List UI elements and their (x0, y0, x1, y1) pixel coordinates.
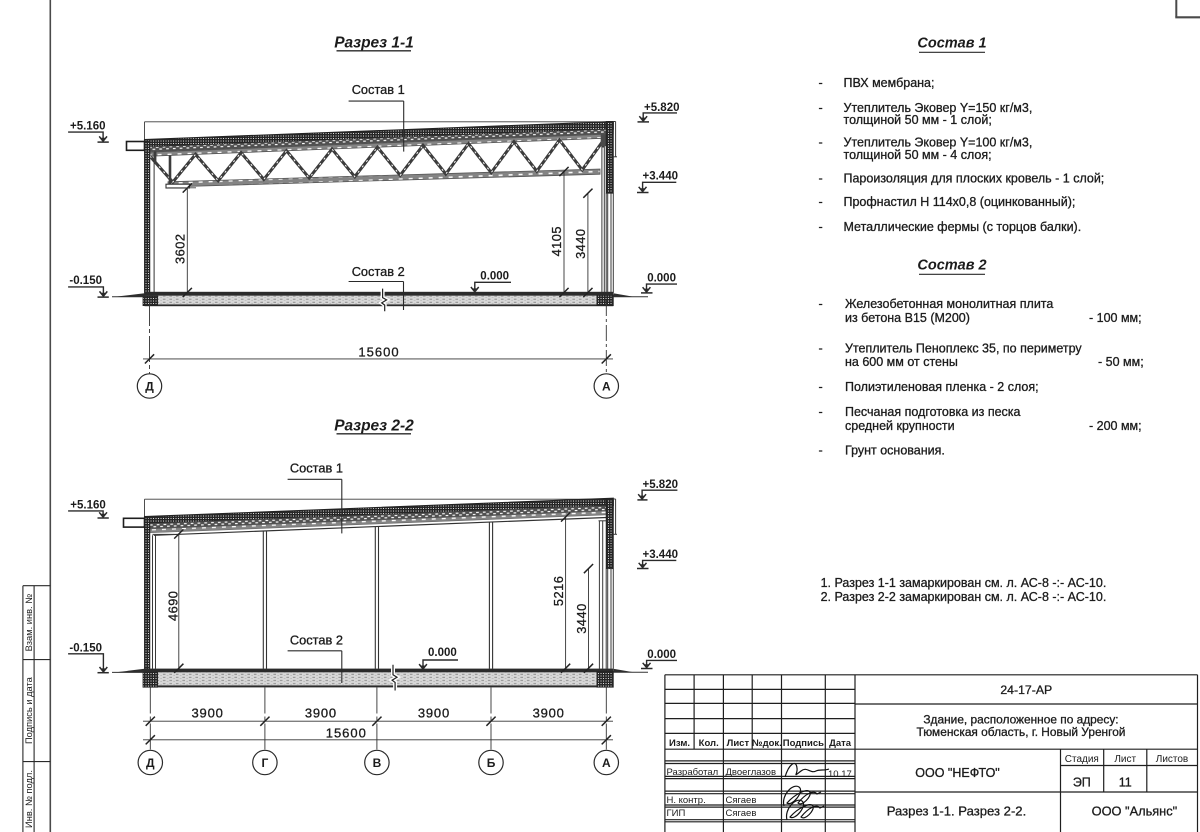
svg-text:на 600 мм от стены: на 600 мм от стены (845, 355, 958, 369)
svg-text:Тюменская область, г. Новый Ур: Тюменская область, г. Новый Уренгой (917, 725, 1126, 739)
svg-text:Сягаев: Сягаев (726, 795, 757, 806)
svg-text:ООО "Альянс": ООО "Альянс" (1092, 803, 1178, 818)
svg-text:толщиной 50 мм - 1 слой;: толщиной 50 мм - 1 слой; (844, 113, 992, 127)
svg-text:-: - (819, 172, 823, 186)
svg-text:0.000: 0.000 (428, 647, 457, 659)
svg-text:1. Разрез 1-1 замаркирован см.: 1. Разрез 1-1 замаркирован см. л. АС-8 -… (821, 576, 1107, 590)
svg-text:№док.: №док. (752, 738, 782, 749)
svg-text:3900: 3900 (305, 706, 337, 721)
svg-text:-: - (819, 135, 823, 149)
svg-text:Взам. инв. №: Взам. инв. № (24, 594, 34, 652)
svg-text:3602: 3602 (172, 233, 187, 263)
svg-text:-: - (819, 405, 823, 419)
svg-text:0.000: 0.000 (647, 649, 676, 661)
svg-text:Кол.: Кол. (699, 738, 719, 749)
svg-text:А: А (602, 756, 611, 770)
svg-text:-: - (819, 101, 823, 115)
svg-text:-0.150: -0.150 (69, 642, 102, 654)
svg-text:4690: 4690 (166, 591, 181, 621)
svg-text:из бетона В15 (М200): из бетона В15 (М200) (845, 311, 970, 325)
svg-text:0.000: 0.000 (647, 272, 676, 284)
svg-text:+5.160: +5.160 (70, 499, 106, 511)
svg-text:3900: 3900 (533, 706, 565, 721)
svg-text:3900: 3900 (192, 706, 224, 721)
svg-text:4105: 4105 (549, 226, 564, 256)
svg-text:24-17-АР: 24-17-АР (1000, 683, 1052, 697)
svg-text:Лист: Лист (1114, 754, 1136, 765)
svg-text:-0.150: -0.150 (69, 275, 102, 287)
svg-text:11: 11 (1119, 775, 1132, 789)
svg-text:Состав 1: Состав 1 (352, 82, 405, 97)
svg-text:- 50 мм;: - 50 мм; (1098, 355, 1144, 369)
svg-text:-: - (819, 444, 823, 458)
svg-text:Пароизоляция для плоских крове: Пароизоляция для плоских кровель - 1 сло… (844, 172, 1105, 186)
svg-text:-: - (819, 195, 823, 209)
svg-text:Профнастил Н 114х0,8 (оцинкова: Профнастил Н 114х0,8 (оцинкованный); (844, 195, 1076, 209)
svg-text:Дата: Дата (829, 738, 852, 749)
svg-text:Состав 2: Состав 2 (290, 633, 343, 648)
svg-text:Изм.: Изм. (669, 738, 690, 749)
svg-text:Состав 2: Состав 2 (352, 264, 405, 279)
svg-text:толщиной 50 мм - 4 слоя;: толщиной 50 мм - 4 слоя; (844, 148, 992, 162)
svg-text:-: - (819, 341, 823, 355)
svg-text:-: - (819, 76, 823, 90)
svg-text:ГИП: ГИП (667, 808, 686, 819)
svg-text:Лист: Лист (727, 738, 750, 749)
svg-text:- 100 мм;: - 100 мм; (1089, 311, 1142, 325)
svg-text:3440: 3440 (573, 228, 588, 258)
svg-text:-: - (819, 297, 823, 311)
svg-text:Разрез 2-2: Разрез 2-2 (334, 418, 414, 435)
svg-text:Б: Б (487, 756, 496, 770)
svg-text:Грунт основания.: Грунт основания. (845, 444, 945, 458)
svg-text:Разрез 1-1: Разрез 1-1 (334, 35, 414, 52)
svg-text:5216: 5216 (551, 576, 566, 606)
svg-text:Двоеглазов: Двоеглазов (726, 767, 777, 778)
svg-text:Д: Д (146, 756, 155, 770)
svg-text:ПВХ мембрана;: ПВХ мембрана; (844, 76, 935, 90)
svg-text:Утеплитель Пеноплекс 35, по пе: Утеплитель Пеноплекс 35, по периметру (845, 341, 1082, 355)
svg-text:+5.160: +5.160 (70, 121, 106, 133)
svg-text:Стадия: Стадия (1065, 754, 1099, 765)
svg-text:15600: 15600 (326, 725, 367, 740)
svg-text:Сягаев: Сягаев (726, 808, 757, 819)
svg-text:2. Разрез 2-2 замаркирован см.: 2. Разрез 2-2 замаркирован см. л. АС-8 -… (821, 590, 1107, 604)
svg-text:ЭП: ЭП (1073, 775, 1091, 789)
svg-text:Разработал: Разработал (667, 767, 719, 778)
svg-text:Листов: Листов (1156, 754, 1189, 765)
svg-text:Полиэтиленовая пленка - 2 слоя: Полиэтиленовая пленка - 2 слоя; (845, 380, 1039, 394)
svg-text:10.17: 10.17 (828, 769, 852, 780)
svg-text:15600: 15600 (358, 344, 399, 359)
svg-text:Железобетонная монолитная пли: Железобетонная монолитная плита (845, 297, 1053, 311)
svg-text:Металлические фермы (с торцов: Металлические фермы (с торцов балки). (844, 220, 1082, 234)
svg-text:Состав 1: Состав 1 (290, 461, 343, 476)
svg-text:+3.440: +3.440 (643, 171, 679, 183)
svg-text:средней крупности: средней крупности (845, 419, 955, 433)
svg-text:-: - (819, 220, 823, 234)
svg-text:Состав 2: Состав 2 (917, 258, 986, 274)
svg-text:0.000: 0.000 (480, 271, 509, 283)
svg-text:Д: Д (145, 380, 154, 394)
svg-text:Г: Г (261, 756, 268, 770)
svg-text:Подпись: Подпись (783, 738, 824, 749)
svg-text:- 200 мм;: - 200 мм; (1089, 419, 1142, 433)
svg-text:+3.440: +3.440 (643, 549, 679, 561)
svg-text:Состав 1: Состав 1 (917, 36, 986, 52)
svg-text:Н. контр.: Н. контр. (667, 795, 706, 806)
svg-text:+5.820: +5.820 (643, 479, 679, 491)
svg-text:Песчаная подготовка из песка: Песчаная подготовка из песка (845, 405, 1021, 419)
svg-text:А: А (602, 380, 611, 394)
svg-text:В: В (373, 756, 382, 770)
svg-text:Разрез 1-1. Разрез 2-2.: Разрез 1-1. Разрез 2-2. (887, 803, 1026, 818)
svg-text:Инв. № подл.: Инв. № подл. (24, 770, 34, 828)
svg-text:3440: 3440 (574, 603, 589, 633)
svg-text:-: - (819, 380, 823, 394)
svg-text:Подпись и дата: Подпись и дата (24, 676, 34, 744)
svg-text:3900: 3900 (418, 706, 450, 721)
svg-text:ООО "НЕФТО": ООО "НЕФТО" (915, 766, 999, 780)
